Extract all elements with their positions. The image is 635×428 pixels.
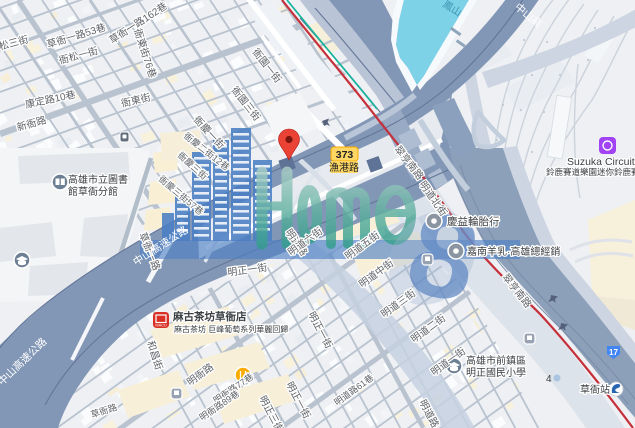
- svg-text:慶益輪胎行: 慶益輪胎行: [447, 215, 500, 228]
- svg-text:高雄市立圖書: 高雄市立圖書: [68, 173, 128, 186]
- svg-text:草衙站: 草衙站: [580, 383, 610, 396]
- svg-text:明正國民小學: 明正國民小學: [466, 366, 526, 379]
- svg-text:嘉南羊乳·高雄總經銷: 嘉南羊乳·高雄總經銷: [467, 245, 560, 258]
- svg-text:漁港路: 漁港路: [329, 161, 359, 174]
- svg-text:麻古茶坊 巨峰葡萄系列華麗回歸: 麻古茶坊 巨峰葡萄系列華麗回歸: [174, 324, 288, 334]
- svg-text:MACU: MACU: [155, 324, 166, 328]
- svg-text:高雄市前鎮區: 高雄市前鎮區: [466, 354, 526, 367]
- svg-text:麻古茶坊草衙店: 麻古茶坊草衙店: [172, 310, 247, 323]
- svg-text:17: 17: [609, 348, 618, 357]
- svg-text:鈴鹿賽道樂園迷你鈴鹿賽: 鈴鹿賽道樂園迷你鈴鹿賽: [546, 167, 635, 177]
- svg-text:373: 373: [336, 149, 354, 161]
- svg-text:館草衙分館: 館草衙分館: [68, 185, 118, 198]
- svg-text:4: 4: [546, 374, 552, 385]
